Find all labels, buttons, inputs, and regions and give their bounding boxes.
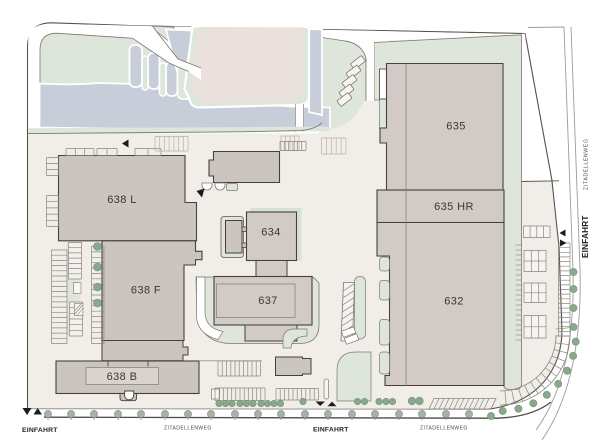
svg-text:ZITADELLENWEG: ZITADELLENWEG (420, 426, 468, 432)
svg-text:634: 634 (261, 227, 281, 239)
svg-text:EINFAHRT: EINFAHRT (581, 215, 590, 258)
svg-text:638 B: 638 B (107, 371, 138, 383)
svg-text:ZITADELLENWEG: ZITADELLENWEG (584, 138, 590, 190)
svg-text:638 L: 638 L (107, 194, 137, 206)
svg-text:ZITADELLENWEG: ZITADELLENWEG (164, 426, 212, 432)
svg-text:EINFAHRT: EINFAHRT (22, 427, 58, 434)
svg-text:635: 635 (446, 121, 466, 133)
svg-text:632: 632 (444, 296, 464, 308)
svg-text:635 HR: 635 HR (434, 201, 474, 213)
svg-text:638 F: 638 F (131, 285, 161, 297)
svg-text:EINFAHRT: EINFAHRT (313, 427, 349, 434)
svg-text:637: 637 (258, 295, 278, 307)
